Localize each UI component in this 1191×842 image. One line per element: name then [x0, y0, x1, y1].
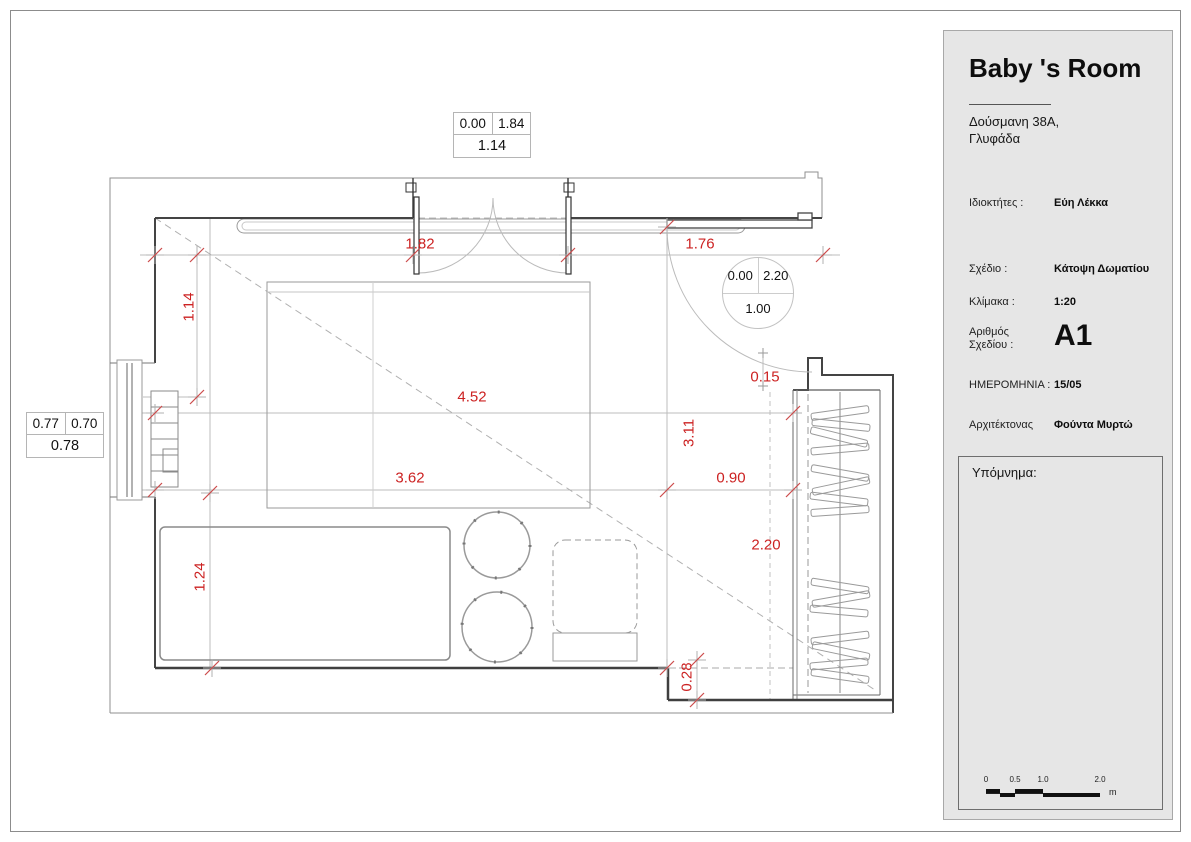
dim-right-opening: 1.76	[685, 236, 714, 253]
door-tag-circle-left: 0.00	[723, 258, 759, 293]
scale-bar-tick-20: 2.0	[1094, 775, 1105, 784]
number-value: A1	[1054, 319, 1092, 353]
door-tag-top-right: 1.84	[493, 113, 531, 134]
scale-bar-segment	[1000, 793, 1015, 797]
scale-label: Κλίμακα :	[969, 296, 1015, 309]
double-door	[414, 197, 571, 274]
architect-label: Αρχιτέκτονας	[969, 419, 1033, 432]
address-line-2: Γλυφάδα	[969, 130, 1059, 147]
date-label: ΗΜΕΡΟΜΗΝΙΑ :	[969, 379, 1050, 392]
number-label: Αριθμός Σχεδίου :	[969, 326, 1035, 352]
address-line-1: Δούσμανη 38Α,	[969, 113, 1059, 130]
bed	[160, 527, 450, 660]
scale-bar-tick-0: 0	[984, 775, 988, 784]
dim-closet-offset: 0.15	[750, 369, 779, 386]
walls	[110, 178, 893, 700]
pouf-stools	[462, 512, 532, 662]
scale-bar-segment	[986, 789, 1000, 793]
door-tag-top-bottom: 1.14	[454, 135, 530, 157]
legend-box: Υπόμνημα: 0 0.5 1.0 2.0 m	[958, 456, 1163, 810]
architect-value: Φούντα Μυρτώ	[1054, 419, 1133, 431]
dim-bed-width: 1.24	[192, 562, 209, 591]
date-value: 15/05	[1054, 379, 1082, 391]
dim-left-segment: 1.14	[181, 292, 198, 321]
scale-bar-segment	[1015, 789, 1043, 793]
dim-room-width: 3.62	[395, 470, 424, 487]
owner-value: Εύη Λέκκα	[1054, 197, 1108, 209]
window-tag-left-a: 0.77	[27, 413, 66, 434]
drawing-label: Σχέδιο :	[969, 263, 1007, 276]
door-tag-circle-bottom: 1.00	[723, 294, 793, 327]
drawing-value: Κάτοψη Δωματίου	[1054, 263, 1149, 275]
scale-bar-unit: m	[1109, 787, 1117, 797]
project-address: Δούσμανη 38Α, Γλυφάδα	[969, 113, 1059, 147]
floor-plan-page: { "title_block": { "title": "Baby 's Roo…	[0, 0, 1191, 842]
chair	[553, 540, 637, 661]
project-title: Baby 's Room	[969, 53, 1141, 84]
title-rule	[969, 104, 1051, 105]
window-left	[117, 360, 142, 500]
dim-wall-step: 0.28	[679, 662, 696, 691]
scale-bar-tick-05: 0.5	[1009, 775, 1020, 784]
outer-boundary	[110, 172, 893, 713]
scale-value: 1:20	[1054, 296, 1076, 308]
door-tag-top-left: 0.00	[454, 113, 493, 134]
window-tag-left-b: 0.70	[66, 413, 104, 434]
scale-bar-tick-10: 1.0	[1037, 775, 1048, 784]
dim-room-depth: 3.11	[681, 419, 698, 447]
door-tag-circle: 0.00 2.20 1.00	[722, 257, 794, 329]
window-tag-left: 0.77 0.70 0.78	[26, 412, 104, 458]
dim-closet-depth: 2.20	[751, 537, 780, 554]
door-tag-circle-right: 2.20	[759, 268, 794, 283]
door-tag-top: 0.00 1.84 1.14	[453, 112, 531, 158]
crib	[267, 282, 590, 508]
owner-label: Ιδιοκτήτες :	[969, 197, 1023, 210]
dim-total-width: 4.52	[457, 389, 486, 406]
window-tag-left-bottom: 0.78	[27, 435, 103, 457]
scale-bar-segment	[1043, 793, 1100, 797]
wardrobe	[793, 358, 893, 713]
legend-label: Υπόμνημα:	[972, 465, 1037, 480]
dim-shelf-width: 1.82	[405, 236, 434, 253]
dim-closet-gap: 0.90	[716, 470, 745, 487]
title-block: Baby 's Room Δούσμανη 38Α, Γλυφάδα Ιδιοκ…	[943, 30, 1173, 820]
